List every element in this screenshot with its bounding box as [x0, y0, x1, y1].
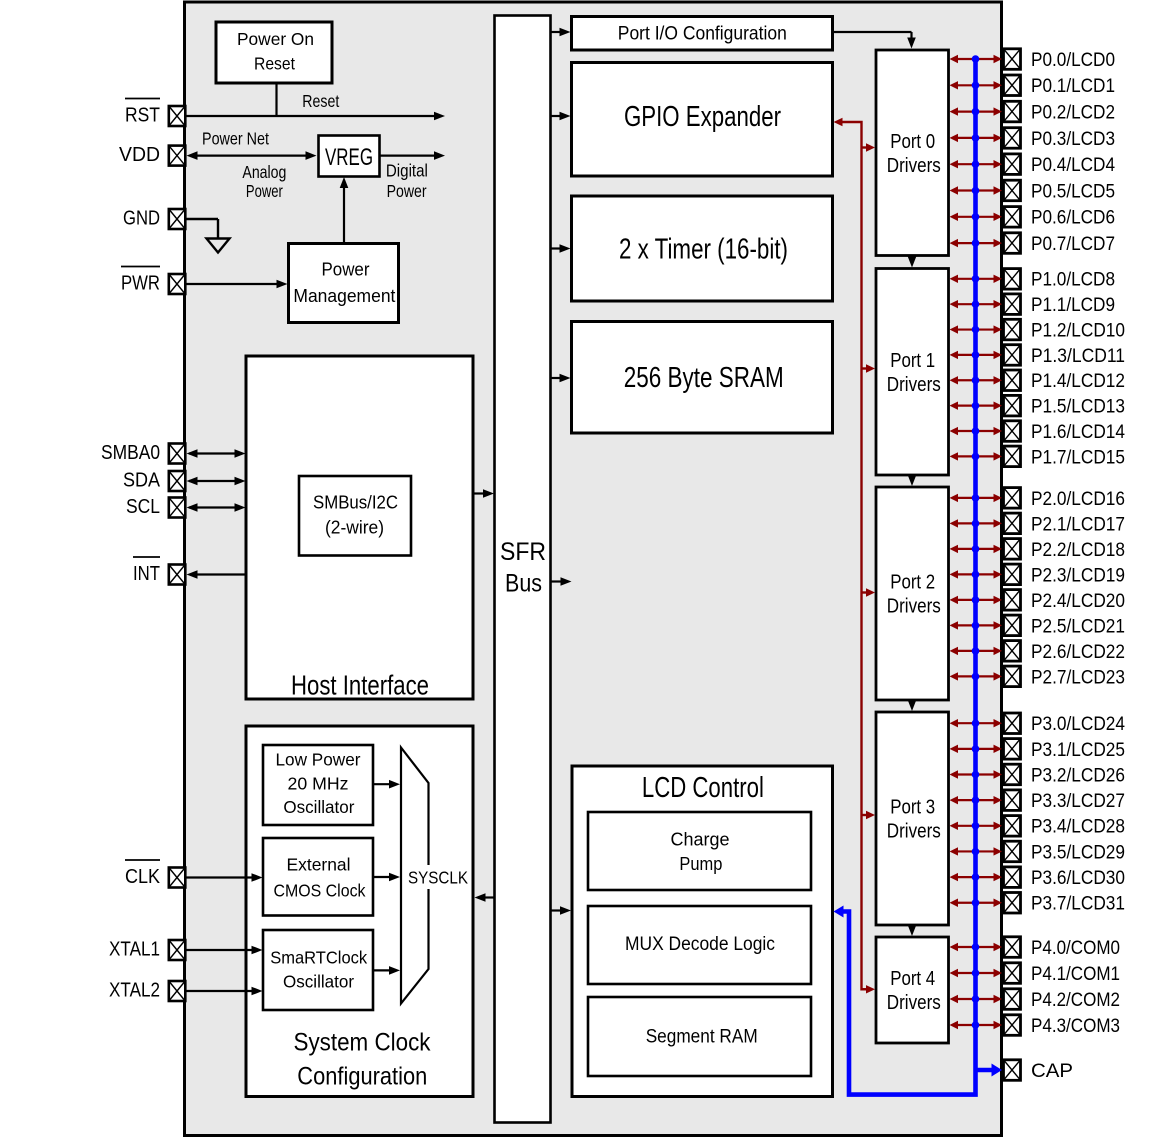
- svg-text:P1.5/LCD13: P1.5/LCD13: [1031, 396, 1125, 418]
- svg-text:CMOS Clock: CMOS Clock: [274, 881, 366, 901]
- svg-text:P2.5/LCD21: P2.5/LCD21: [1031, 615, 1125, 637]
- svg-text:P3.4/LCD28: P3.4/LCD28: [1031, 816, 1125, 838]
- svg-text:Analog: Analog: [242, 162, 286, 182]
- svg-text:RST: RST: [125, 105, 160, 127]
- svg-text:Port 3: Port 3: [890, 797, 935, 819]
- svg-text:P1.0/LCD8: P1.0/LCD8: [1031, 269, 1115, 291]
- svg-text:P4.2/COM2: P4.2/COM2: [1031, 989, 1120, 1011]
- svg-text:P3.3/LCD27: P3.3/LCD27: [1031, 790, 1125, 812]
- svg-text:Drivers: Drivers: [887, 992, 941, 1014]
- svg-text:SMBA0: SMBA0: [101, 442, 160, 464]
- svg-text:Drivers: Drivers: [887, 596, 941, 618]
- svg-text:P1.2/LCD10: P1.2/LCD10: [1031, 320, 1125, 342]
- svg-text:P4.3/COM3: P4.3/COM3: [1031, 1015, 1120, 1037]
- svg-text:Oscillator: Oscillator: [283, 797, 354, 817]
- svg-text:SmaRTClock: SmaRTClock: [270, 948, 367, 968]
- svg-text:P0.5/LCD5: P0.5/LCD5: [1031, 180, 1115, 202]
- svg-text:XTAL1: XTAL1: [109, 939, 160, 961]
- svg-text:Port 2: Port 2: [890, 572, 935, 594]
- svg-text:Host Interface: Host Interface: [291, 669, 429, 700]
- svg-text:P0.6/LCD6: P0.6/LCD6: [1031, 207, 1115, 229]
- svg-text:SFR: SFR: [500, 538, 546, 566]
- svg-text:(2-wire): (2-wire): [325, 517, 384, 538]
- svg-text:MUX Decode Logic: MUX Decode Logic: [625, 934, 775, 955]
- svg-text:P2.7/LCD23: P2.7/LCD23: [1031, 666, 1125, 688]
- svg-text:Power: Power: [322, 259, 370, 280]
- svg-text:XTAL2: XTAL2: [109, 980, 160, 1002]
- svg-text:Pump: Pump: [679, 853, 722, 874]
- svg-text:Port 4: Port 4: [890, 968, 935, 990]
- svg-text:SCL: SCL: [126, 496, 160, 518]
- svg-text:P2.4/LCD20: P2.4/LCD20: [1031, 590, 1125, 612]
- svg-text:P4.1/COM1: P4.1/COM1: [1031, 963, 1120, 985]
- svg-text:Power Net: Power Net: [202, 129, 269, 149]
- svg-text:20 MHz: 20 MHz: [288, 774, 349, 794]
- svg-text:Drivers: Drivers: [887, 374, 941, 396]
- svg-text:VREG: VREG: [325, 144, 373, 171]
- svg-text:P4.0/COM0: P4.0/COM0: [1031, 937, 1120, 959]
- svg-text:PWR: PWR: [121, 273, 160, 295]
- svg-text:P1.7/LCD15: P1.7/LCD15: [1031, 446, 1125, 468]
- svg-text:Port 1: Port 1: [890, 350, 935, 372]
- svg-text:Power: Power: [387, 181, 427, 201]
- svg-text:INT: INT: [133, 563, 160, 585]
- svg-text:SDA: SDA: [123, 470, 161, 492]
- svg-text:CAP: CAP: [1031, 1060, 1073, 1082]
- svg-text:Port I/O Configuration: Port I/O Configuration: [618, 24, 787, 45]
- svg-text:2 x Timer (16-bit): 2 x Timer (16-bit): [619, 233, 788, 265]
- svg-text:Management: Management: [293, 285, 395, 306]
- svg-text:GND: GND: [123, 208, 160, 230]
- svg-text:P1.1/LCD9: P1.1/LCD9: [1031, 294, 1115, 316]
- svg-text:P1.4/LCD12: P1.4/LCD12: [1031, 370, 1125, 392]
- svg-text:P3.0/LCD24: P3.0/LCD24: [1031, 713, 1125, 735]
- svg-text:Power: Power: [246, 181, 283, 201]
- svg-text:System Clock: System Clock: [294, 1028, 431, 1056]
- svg-text:256 Byte SRAM: 256 Byte SRAM: [624, 362, 784, 394]
- svg-text:P0.7/LCD7: P0.7/LCD7: [1031, 233, 1115, 255]
- svg-text:Digital: Digital: [386, 161, 428, 181]
- svg-text:Port 0: Port 0: [890, 131, 935, 153]
- svg-text:P0.4/LCD4: P0.4/LCD4: [1031, 154, 1115, 176]
- svg-text:P2.3/LCD19: P2.3/LCD19: [1031, 564, 1125, 586]
- svg-text:P0.0/LCD0: P0.0/LCD0: [1031, 49, 1115, 71]
- svg-text:P0.3/LCD3: P0.3/LCD3: [1031, 128, 1115, 150]
- svg-text:SMBus/I2C: SMBus/I2C: [313, 492, 398, 513]
- svg-text:P0.2/LCD2: P0.2/LCD2: [1031, 102, 1115, 124]
- svg-text:Reset: Reset: [254, 54, 295, 74]
- svg-text:Segment RAM: Segment RAM: [646, 1027, 758, 1048]
- svg-text:GPIO Expander: GPIO Expander: [624, 101, 781, 133]
- svg-text:P2.2/LCD18: P2.2/LCD18: [1031, 539, 1125, 561]
- svg-text:P2.0/LCD16: P2.0/LCD16: [1031, 488, 1125, 510]
- svg-text:Bus: Bus: [505, 569, 542, 597]
- svg-text:P3.6/LCD30: P3.6/LCD30: [1031, 867, 1125, 889]
- svg-text:SYSCLK: SYSCLK: [408, 868, 468, 888]
- svg-text:P3.7/LCD31: P3.7/LCD31: [1031, 893, 1125, 915]
- svg-text:P1.3/LCD11: P1.3/LCD11: [1031, 345, 1125, 367]
- svg-text:P1.6/LCD14: P1.6/LCD14: [1031, 421, 1125, 443]
- svg-text:Power On: Power On: [237, 29, 314, 49]
- svg-text:Drivers: Drivers: [887, 821, 941, 843]
- svg-text:Reset: Reset: [302, 91, 339, 111]
- svg-text:LCD Control: LCD Control: [642, 772, 764, 804]
- svg-text:P3.2/LCD26: P3.2/LCD26: [1031, 764, 1125, 786]
- svg-text:P3.5/LCD29: P3.5/LCD29: [1031, 841, 1125, 863]
- svg-text:Oscillator: Oscillator: [283, 972, 354, 992]
- svg-text:P2.1/LCD17: P2.1/LCD17: [1031, 513, 1125, 535]
- svg-text:Drivers: Drivers: [887, 155, 941, 177]
- svg-text:P2.6/LCD22: P2.6/LCD22: [1031, 641, 1125, 663]
- svg-text:Charge: Charge: [671, 829, 730, 850]
- svg-text:VDD: VDD: [119, 144, 160, 166]
- svg-text:Configuration: Configuration: [297, 1062, 427, 1090]
- svg-text:P3.1/LCD25: P3.1/LCD25: [1031, 739, 1125, 761]
- svg-text:P0.1/LCD1: P0.1/LCD1: [1031, 75, 1115, 97]
- svg-text:CLK: CLK: [125, 866, 161, 888]
- svg-text:External: External: [287, 855, 351, 875]
- svg-text:Low Power: Low Power: [276, 750, 361, 770]
